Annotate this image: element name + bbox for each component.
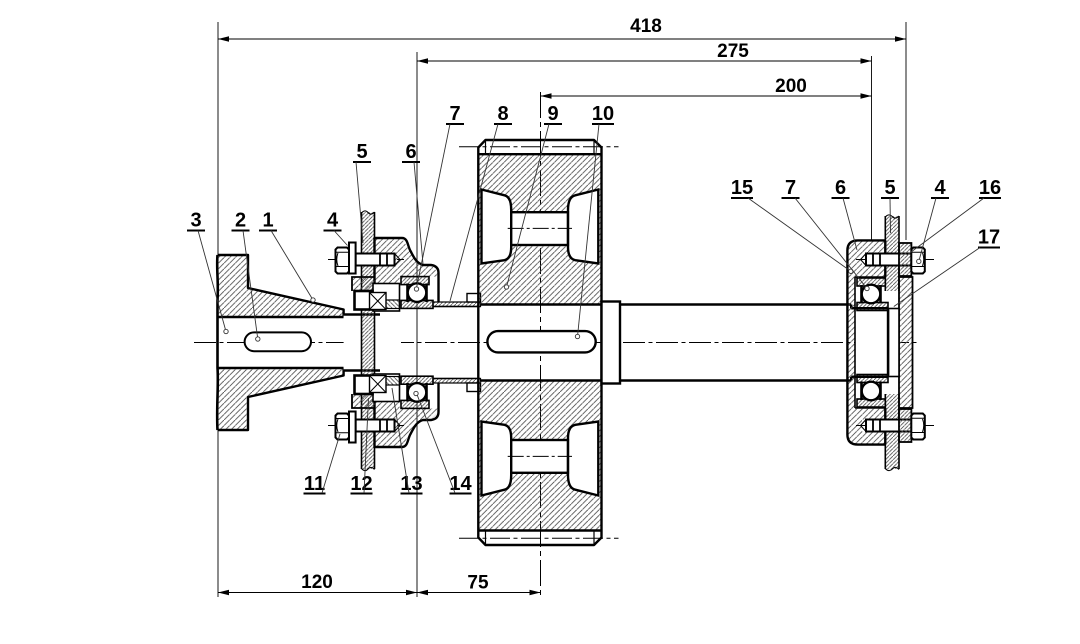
svg-text:1: 1 [262,210,273,232]
svg-text:2: 2 [235,210,246,232]
svg-text:8: 8 [497,103,508,125]
svg-text:7: 7 [785,177,796,199]
svg-text:6: 6 [405,141,416,163]
svg-text:16: 16 [979,177,1001,199]
svg-text:4: 4 [327,210,339,232]
svg-text:12: 12 [350,473,372,495]
svg-text:120: 120 [301,572,333,593]
svg-text:75: 75 [467,573,489,594]
svg-text:9: 9 [547,103,558,125]
svg-text:5: 5 [356,141,367,163]
svg-text:3: 3 [190,210,201,232]
svg-text:5: 5 [884,177,895,199]
svg-text:7: 7 [449,103,460,125]
svg-text:17: 17 [978,227,1000,249]
svg-text:4: 4 [934,177,946,199]
svg-text:13: 13 [400,473,422,495]
svg-text:10: 10 [592,103,614,125]
svg-text:15: 15 [731,177,753,199]
svg-text:14: 14 [449,473,472,495]
svg-text:6: 6 [835,177,846,199]
svg-text:275: 275 [717,41,749,62]
svg-text:200: 200 [775,76,807,97]
svg-text:11: 11 [304,473,325,495]
svg-text:418: 418 [630,16,662,37]
